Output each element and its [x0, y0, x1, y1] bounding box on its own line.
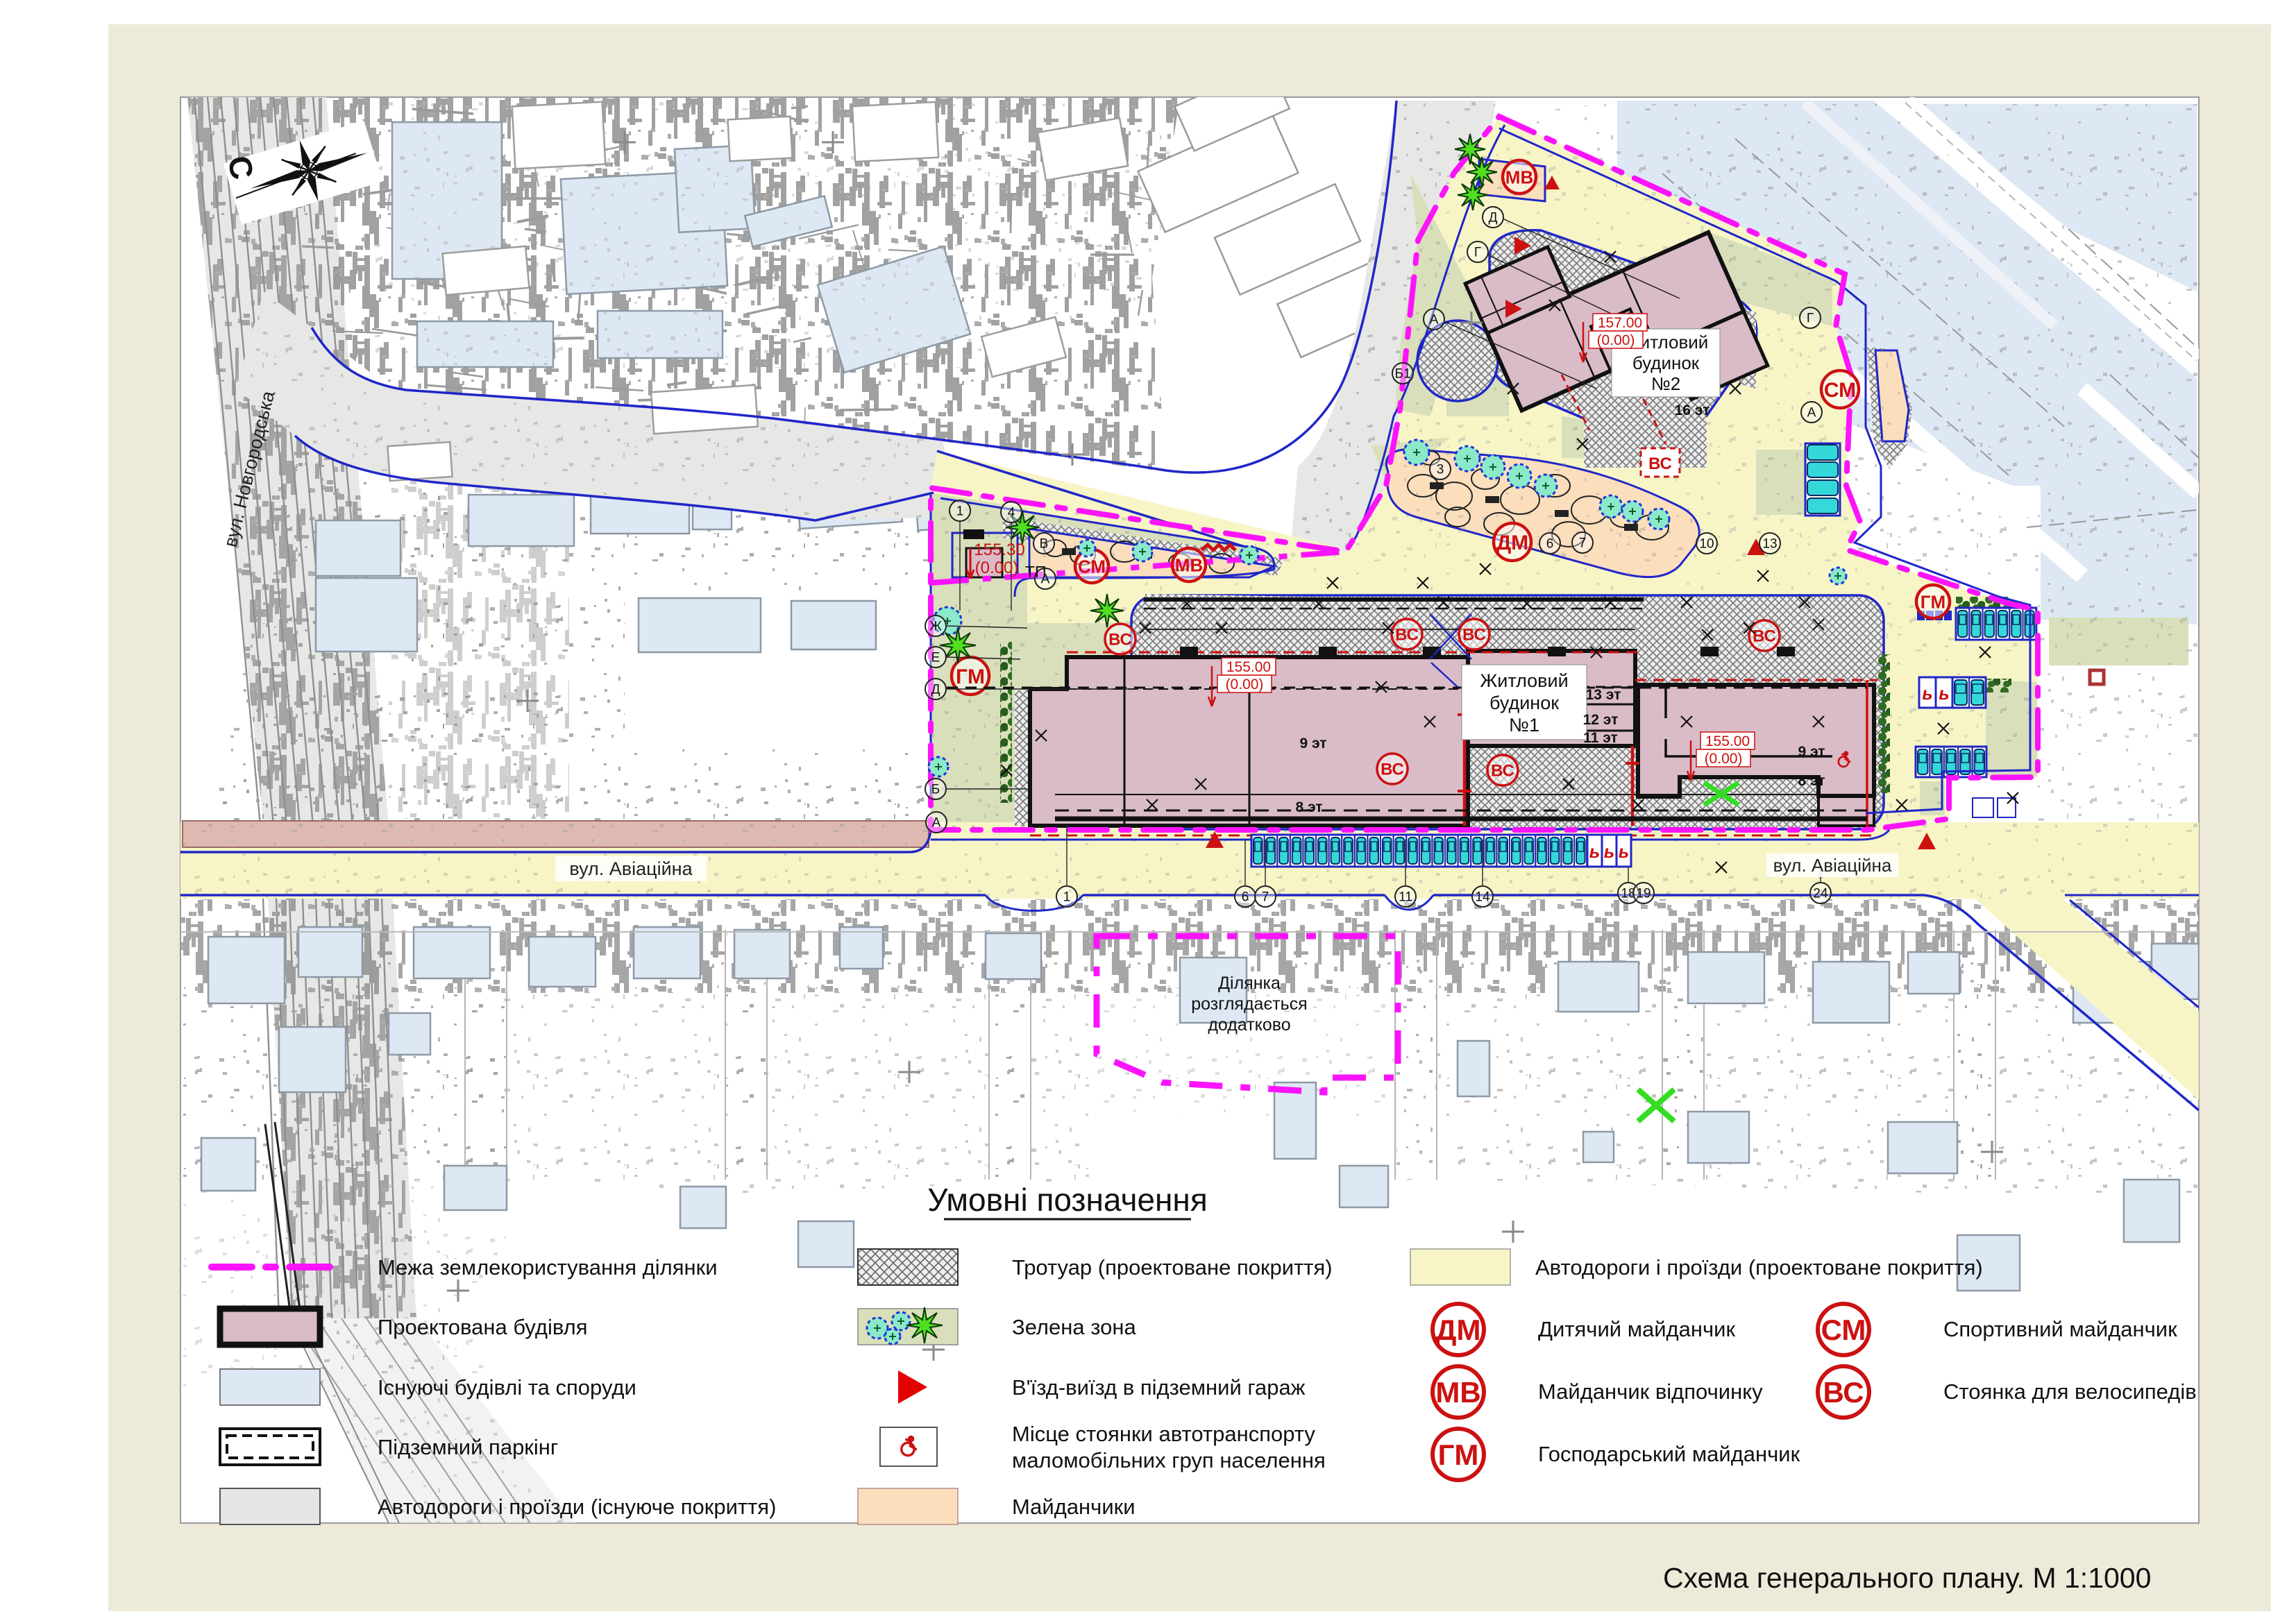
svg-text:СМ: СМ: [1824, 379, 1856, 402]
svg-text:ДМ: ДМ: [1436, 1314, 1481, 1346]
svg-text:ь: ь: [1604, 841, 1614, 862]
svg-text:(0.00): (0.00): [1226, 677, 1264, 692]
svg-text:Б: Б: [931, 783, 940, 797]
svg-text:Схема генерального плану. М 1: Схема генерального плану. М 1:1000: [1663, 1562, 2151, 1594]
svg-text:10: 10: [1699, 537, 1714, 552]
svg-text:В: В: [1040, 537, 1049, 552]
svg-text:Майданчики: Майданчики: [1012, 1495, 1136, 1519]
svg-text:А: А: [1807, 406, 1816, 420]
svg-text:11: 11: [1399, 890, 1412, 905]
svg-text:ВС: ВС: [1491, 762, 1514, 781]
svg-text:ГМ: ГМ: [1438, 1438, 1479, 1471]
svg-text:Майданчик відпочинку: Майданчик відпочинку: [1538, 1379, 1763, 1404]
svg-text:будинок: будинок: [1489, 692, 1559, 713]
svg-text:3: 3: [1437, 463, 1444, 477]
svg-text:Ділянка: Ділянка: [1218, 974, 1281, 993]
svg-text:14: 14: [1475, 890, 1490, 905]
svg-text:155.30: 155.30: [974, 541, 1024, 559]
svg-text:(0.00): (0.00): [975, 559, 1019, 577]
svg-text:7: 7: [1262, 890, 1269, 905]
svg-text:24: 24: [1813, 887, 1828, 901]
svg-text:13 эт: 13 эт: [1586, 687, 1621, 703]
svg-text:Г: Г: [1474, 246, 1481, 260]
svg-text:ГМ: ГМ: [1921, 591, 1945, 612]
svg-text:ВС: ВС: [1462, 626, 1486, 645]
svg-text:№1: №1: [1509, 715, 1539, 736]
svg-text:9 эт: 9 эт: [1798, 744, 1825, 760]
svg-text:157.00: 157.00: [1598, 315, 1642, 331]
svg-text:Тротуар (проектоване покриття): Тротуар (проектоване покриття): [1012, 1255, 1333, 1280]
svg-text:155.00: 155.00: [1226, 659, 1271, 675]
svg-text:(0.00): (0.00): [1705, 751, 1743, 767]
svg-text:1: 1: [1063, 890, 1071, 905]
svg-text:Г: Г: [1807, 312, 1814, 326]
svg-text:ь: ь: [1922, 683, 1932, 704]
svg-text:ВС: ВС: [1823, 1376, 1864, 1409]
svg-text:№2: №2: [1651, 373, 1680, 394]
svg-text:Спортивний майданчик: Спортивний майданчик: [1943, 1317, 2177, 1341]
svg-text:Межа землекористування ділянки: Межа землекористування ділянки: [378, 1255, 718, 1280]
svg-text:Існуючі будівлі та споруди: Існуючі будівлі та споруди: [378, 1375, 636, 1400]
svg-text:7: 7: [1579, 536, 1587, 551]
svg-text:Житловий: Житловий: [1480, 670, 1568, 691]
svg-text:ь: ь: [1619, 841, 1629, 862]
svg-text:МВ: МВ: [1175, 554, 1203, 575]
svg-text:МВ: МВ: [1505, 167, 1533, 187]
svg-text:Д: Д: [1489, 211, 1498, 226]
svg-text:ВС: ВС: [1395, 626, 1419, 645]
svg-text:додатково: додатково: [1208, 1015, 1290, 1035]
svg-text:8 эт: 8 эт: [1295, 799, 1322, 815]
svg-text:Зелена зона: Зелена зона: [1012, 1315, 1136, 1339]
svg-text:13: 13: [1762, 537, 1777, 552]
svg-text:8 эт: 8 эт: [1798, 773, 1825, 789]
svg-text:розглядається: розглядається: [1191, 994, 1307, 1014]
svg-text:11 эт: 11 эт: [1583, 730, 1618, 746]
svg-text:Автодороги і проїзди (проектов: Автодороги і проїзди (проектоване покрит…: [1535, 1255, 1983, 1280]
svg-text:ДМ: ДМ: [1496, 532, 1528, 554]
svg-text:(0.00): (0.00): [1597, 332, 1635, 348]
svg-text:Умовні позначення: Умовні позначення: [927, 1182, 1208, 1218]
svg-text:Б1: Б1: [1394, 367, 1410, 382]
svg-text:маломобільних груп населення: маломобільних груп населення: [1012, 1448, 1326, 1472]
svg-text:В'їзд-виїзд в підземний гараж: В'їзд-виїзд в підземний гараж: [1012, 1375, 1306, 1400]
svg-text:16 эт: 16 эт: [1675, 402, 1710, 418]
svg-text:ВС: ВС: [1381, 760, 1404, 779]
svg-text:А: А: [1430, 313, 1439, 328]
svg-text:Стоянка для велосипедів: Стоянка для велосипедів: [1943, 1379, 2197, 1404]
svg-text:ВС: ВС: [1753, 627, 1776, 646]
svg-text:Е: Е: [931, 651, 940, 665]
svg-text:ГМ: ГМ: [956, 665, 985, 688]
svg-text:МВ: МВ: [1435, 1376, 1480, 1409]
svg-text:ь: ь: [1939, 683, 1949, 704]
svg-text:ь: ь: [1589, 841, 1600, 862]
svg-text:СМ: СМ: [1078, 556, 1106, 577]
svg-text:вул. Авіаційна: вул. Авіаційна: [569, 858, 693, 879]
svg-text:Автодороги і проїзди (існуюче: Автодороги і проїзди (існуюче покриття): [378, 1495, 776, 1519]
svg-text:Д: Д: [931, 683, 940, 697]
svg-text:Проектована будівля: Проектована будівля: [378, 1315, 588, 1339]
svg-text:Підземний паркінг: Підземний паркінг: [378, 1435, 558, 1459]
svg-text:ТП: ТП: [1025, 563, 1047, 581]
svg-text:СМ: СМ: [1821, 1314, 1866, 1346]
svg-text:Господарський майданчик: Господарський майданчик: [1538, 1442, 1800, 1466]
svg-text:19: 19: [1636, 887, 1651, 901]
svg-text:вул. Авіаційна: вул. Авіаційна: [1773, 855, 1892, 876]
svg-text:6: 6: [1242, 890, 1249, 905]
svg-text:12 эт: 12 эт: [1583, 712, 1619, 728]
svg-text:А: А: [932, 816, 941, 831]
svg-text:9 эт: 9 эт: [1299, 736, 1326, 751]
svg-text:Ж: Ж: [929, 620, 942, 634]
svg-text:ВС: ВС: [1648, 454, 1672, 473]
svg-text:ВС: ВС: [1108, 631, 1132, 649]
svg-text:6: 6: [1546, 537, 1554, 552]
svg-text:будинок: будинок: [1632, 352, 1700, 373]
svg-text:4: 4: [1008, 506, 1015, 520]
svg-text:Дитячий майданчик: Дитячий майданчик: [1538, 1317, 1735, 1341]
svg-text:1: 1: [956, 504, 964, 519]
svg-text:155.00: 155.00: [1705, 733, 1750, 749]
svg-text:Місце стоянки автотранспорту: Місце стоянки автотранспорту: [1012, 1422, 1315, 1446]
